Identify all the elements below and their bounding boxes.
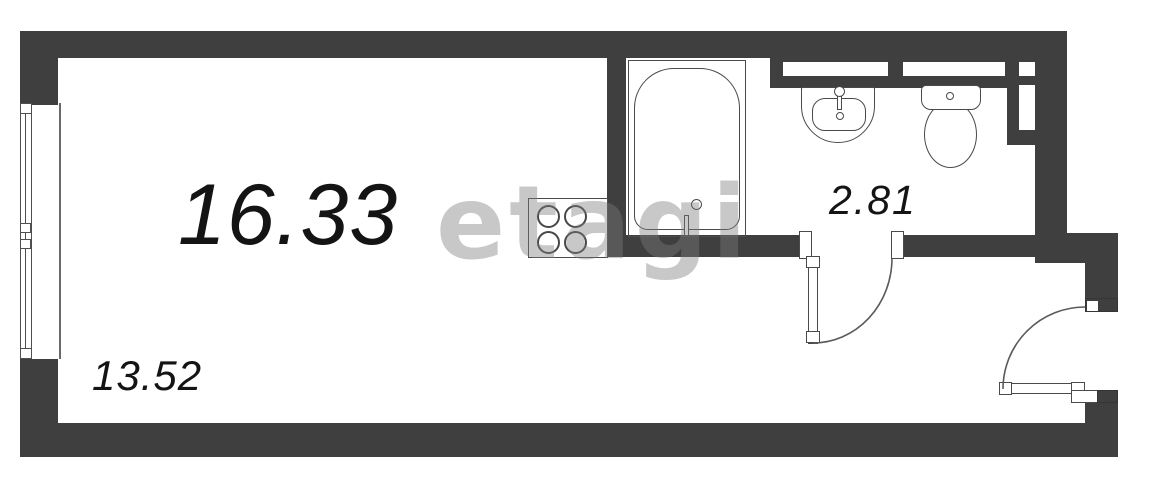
window-line-inner [31, 103, 32, 359]
entrance-door-leaf-cap-left [999, 382, 1012, 395]
wall-right-upper [1035, 31, 1067, 257]
bathroom-door-swing-arc [813, 258, 892, 343]
bathtub-drain-icon [691, 199, 702, 210]
wall-niche-1 [783, 62, 888, 76]
wall-right-jog [1035, 233, 1118, 263]
wall-left-top [20, 31, 58, 105]
sink-faucet-stem [837, 95, 842, 110]
window-node-middle-lower [20, 239, 31, 249]
toilet-flush-button-icon [946, 92, 954, 100]
window-node-bottom [20, 348, 32, 359]
entrance-door-jamb-bottom-dark [1097, 390, 1118, 403]
bathroom-door-leaf-cap-bottom [806, 331, 820, 343]
floor-plan: 16.33 13.52 2.81 etagi [0, 0, 1163, 480]
sink-faucet-icon [834, 86, 845, 97]
wall-niche-4 [1019, 85, 1035, 130]
entrance-door-jamb-bottom [1071, 390, 1100, 403]
area-label-bathroom: 2.81 [829, 180, 917, 221]
wall-bathroom-partition [607, 58, 626, 257]
area-label-main-room: 16.33 [178, 172, 398, 258]
bathroom-door-jamb-left [799, 231, 812, 259]
wall-bathroom-bottom-left [626, 235, 800, 257]
stove-burner-bottom-left [537, 231, 560, 254]
wall-niche-2 [903, 62, 1005, 76]
bathtub-basin [634, 68, 740, 230]
stove-burner-top-left [537, 205, 560, 228]
wall-niche-3 [1019, 62, 1035, 76]
stove-burner-bottom-right [564, 231, 587, 254]
wall-entry-upper [1085, 263, 1118, 301]
entrance-door-jamb-top-notch [1087, 301, 1098, 311]
toilet-bowl [924, 101, 977, 168]
stove-burner-top-right [564, 205, 587, 228]
window-node-top [20, 103, 32, 114]
window-node-middle-upper [20, 223, 31, 233]
sink-drain-icon [836, 112, 844, 120]
wall-entry-lower [1085, 402, 1118, 457]
wall-bottom [20, 423, 1090, 457]
bathroom-door-jamb-right [891, 231, 904, 259]
entrance-door-swing-arc [1003, 307, 1085, 389]
wall-inner-face-line [59, 103, 61, 359]
bathtub-faucet-icon [684, 215, 689, 236]
area-label-main-room-part: 13.52 [92, 355, 202, 397]
bathroom-door-leaf-cap-top [806, 256, 820, 268]
